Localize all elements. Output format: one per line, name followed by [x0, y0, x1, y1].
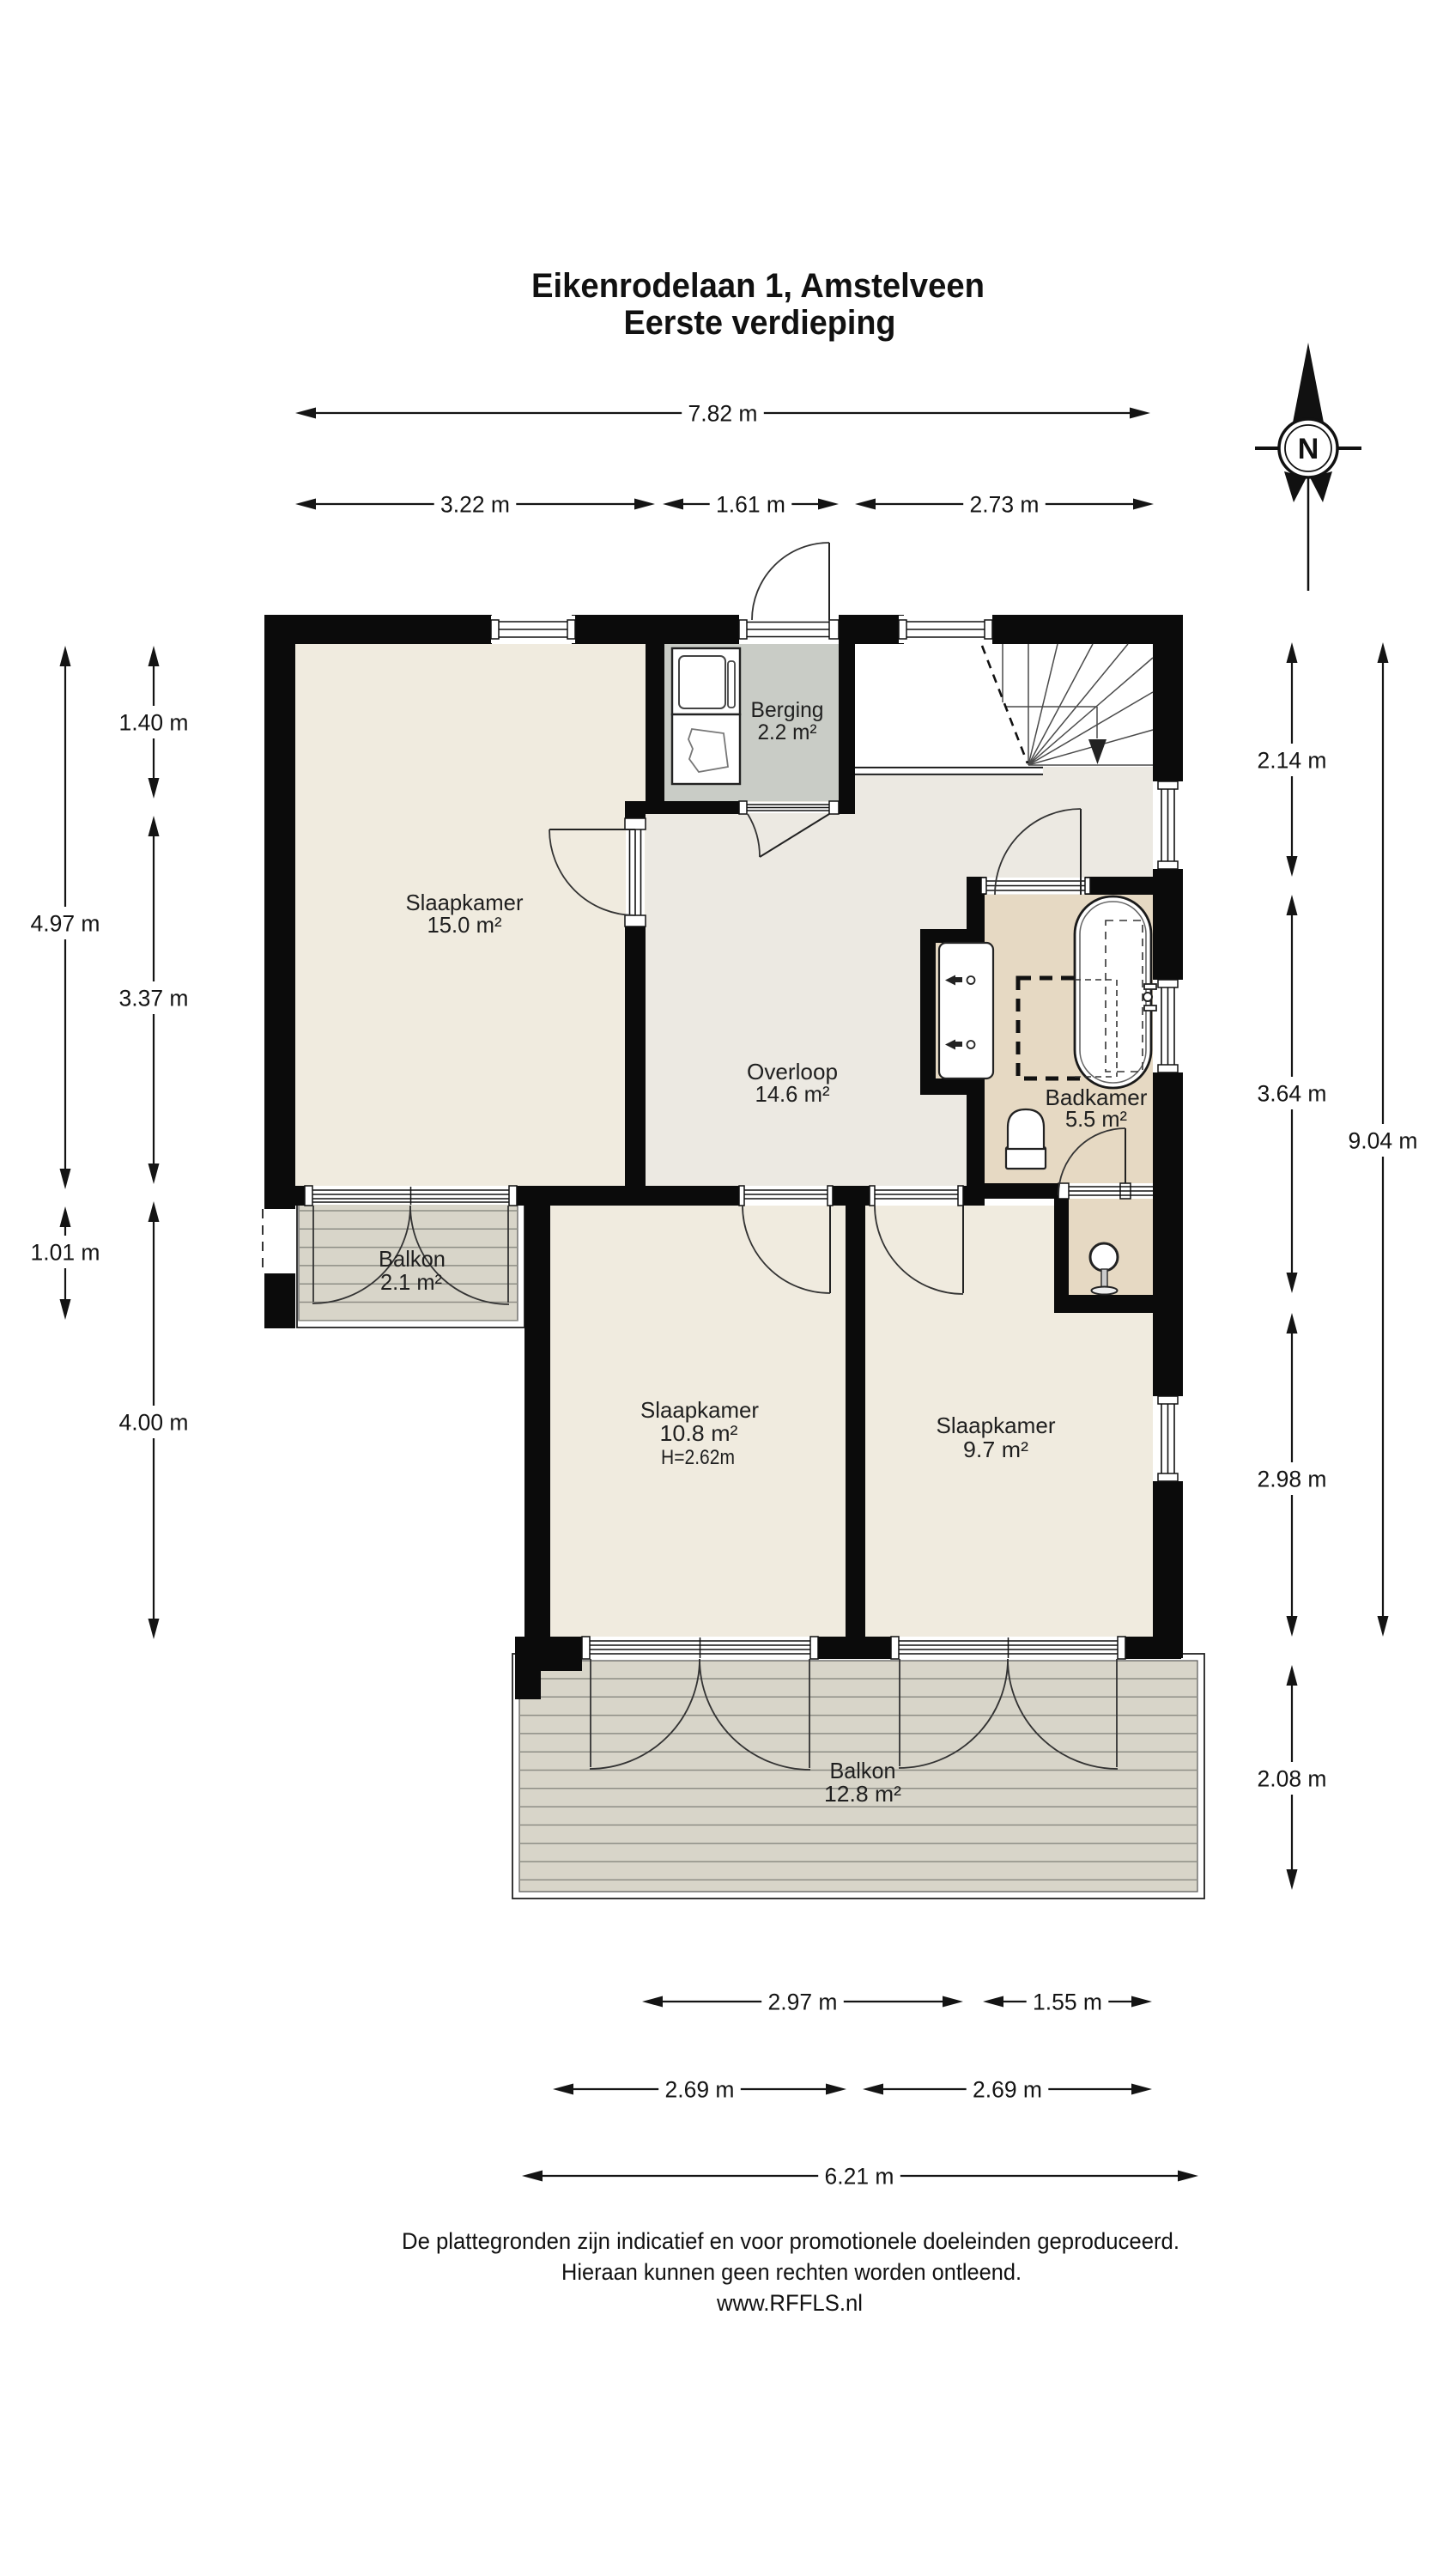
svg-text:2.98 m: 2.98 m — [1257, 1467, 1326, 1492]
svg-text:N: N — [1298, 433, 1319, 465]
svg-text:2.14 m: 2.14 m — [1257, 748, 1326, 774]
svg-text:2.1 m²: 2.1 m² — [380, 1269, 442, 1295]
svg-text:2.2 m²: 2.2 m² — [758, 720, 817, 744]
svg-text:9.04 m: 9.04 m — [1348, 1128, 1417, 1154]
svg-text:Eerste verdieping: Eerste verdieping — [624, 304, 896, 342]
svg-text:Balkon: Balkon — [830, 1758, 896, 1783]
svg-text:Eikenrodelaan 1, Amstelveen: Eikenrodelaan 1, Amstelveen — [531, 267, 985, 305]
svg-text:4.97 m: 4.97 m — [30, 911, 100, 937]
svg-text:1.61 m: 1.61 m — [716, 492, 785, 518]
svg-text:2.69 m: 2.69 m — [973, 2077, 1042, 2103]
svg-text:4.00 m: 4.00 m — [118, 1410, 188, 1436]
svg-text:H=2.62m: H=2.62m — [661, 1446, 735, 1469]
svg-text:Balkon: Balkon — [379, 1246, 446, 1272]
svg-text:6.21 m: 6.21 m — [824, 2164, 894, 2190]
svg-text:Berging: Berging — [751, 698, 824, 722]
svg-text:De plattegronden zijn indicati: De plattegronden zijn indicatief en voor… — [402, 2228, 1179, 2254]
svg-text:10.8 m²: 10.8 m² — [660, 1420, 738, 1446]
svg-text:2.08 m: 2.08 m — [1257, 1766, 1326, 1792]
svg-text:7.82 m: 7.82 m — [688, 401, 757, 427]
svg-text:2.73 m: 2.73 m — [969, 492, 1039, 518]
svg-text:3.37 m: 3.37 m — [118, 986, 188, 1012]
svg-text:3.22 m: 3.22 m — [440, 492, 510, 518]
svg-text:1.01 m: 1.01 m — [30, 1240, 100, 1266]
svg-text:9.7 m²: 9.7 m² — [963, 1437, 1028, 1462]
svg-text:14.6 m²: 14.6 m² — [755, 1081, 830, 1107]
svg-text:Slaapkamer: Slaapkamer — [937, 1413, 1056, 1438]
svg-text:www.RFFLS.nl: www.RFFLS.nl — [716, 2290, 863, 2316]
svg-text:3.64 m: 3.64 m — [1257, 1081, 1326, 1107]
svg-text:15.0 m²: 15.0 m² — [427, 912, 502, 938]
svg-text:2.97 m: 2.97 m — [767, 1990, 837, 2015]
svg-text:2.69 m: 2.69 m — [664, 2077, 734, 2103]
svg-text:Slaapkamer: Slaapkamer — [640, 1397, 759, 1423]
svg-text:Hieraan kunnen geen rechten wo: Hieraan kunnen geen rechten worden ontle… — [561, 2259, 1022, 2285]
svg-text:1.55 m: 1.55 m — [1033, 1990, 1102, 2015]
svg-text:5.5 m²: 5.5 m² — [1065, 1106, 1127, 1132]
svg-text:12.8 m²: 12.8 m² — [824, 1781, 901, 1807]
svg-text:1.40 m: 1.40 m — [118, 710, 188, 736]
